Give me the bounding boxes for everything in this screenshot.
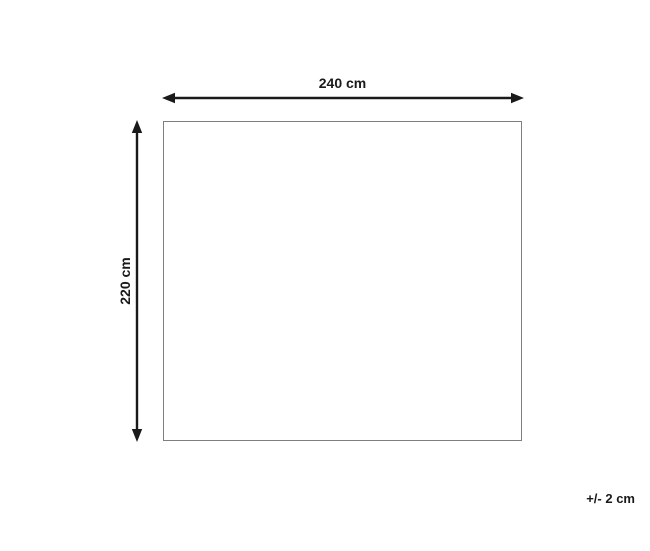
width-dimension-label: 240 cm: [163, 75, 522, 91]
tolerance-label: +/- 2 cm: [586, 491, 635, 507]
dimension-diagram-canvas: 240 cm 220 cm +/- 2 cm: [0, 0, 650, 551]
width-arrow-icon: [162, 90, 524, 106]
product-outline-rect: [163, 121, 522, 441]
height-dimension-label: 220 cm: [115, 231, 135, 331]
